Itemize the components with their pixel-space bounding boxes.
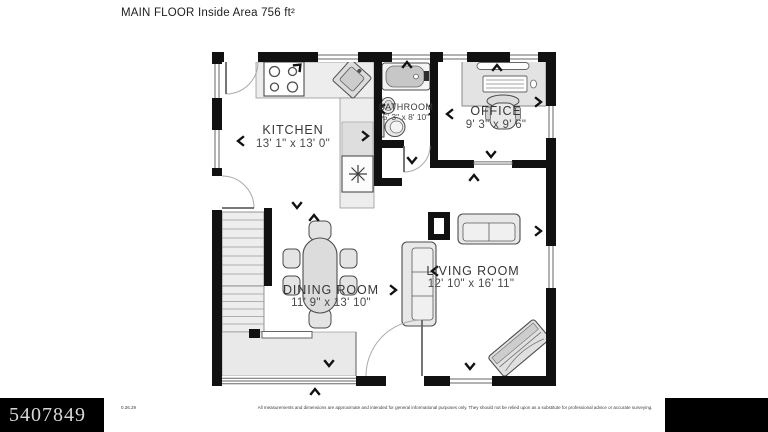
office-label: OFFICE [470, 104, 521, 118]
kitchen-label: KITCHEN [262, 123, 323, 137]
bathroom-dimensions: 5' 3" x 8' 10" [383, 112, 430, 122]
floorplan-page: MAIN FLOOR Inside Area 756 ft² [0, 0, 768, 432]
column-icon [431, 215, 447, 237]
watermark-number: 5407849 [9, 404, 86, 427]
living-label: LIVING ROOM [426, 264, 519, 278]
loveseat-icon [458, 214, 520, 244]
footer-code: 0.26.29 [121, 405, 136, 410]
watermark-badge: 5407849 [0, 398, 104, 432]
stove-icon [264, 62, 304, 96]
dining-dimensions: 11' 9" x 13' 10" [291, 297, 371, 309]
living-dimensions: 12' 10" x 16' 11" [428, 278, 515, 290]
kitchen-dimensions: 13' 1" x 13' 0" [256, 138, 330, 150]
floorplan-drawing: KITCHEN 13' 1" x 13' 0" BATHROOM 5' 3" x… [0, 0, 768, 432]
fridge-icon [342, 156, 373, 192]
bathtub-icon [382, 63, 430, 90]
office-dimensions: 9' 3" x 9' 6" [466, 119, 527, 131]
footer-right-block [665, 398, 768, 432]
bathroom-label: BATHROOM [379, 102, 434, 112]
piano-icon [488, 319, 551, 377]
footer-disclaimer: All measurements and dimensions are appr… [250, 405, 660, 410]
dining-label: DINING ROOM [283, 283, 379, 297]
dining-table-icon [283, 221, 357, 328]
